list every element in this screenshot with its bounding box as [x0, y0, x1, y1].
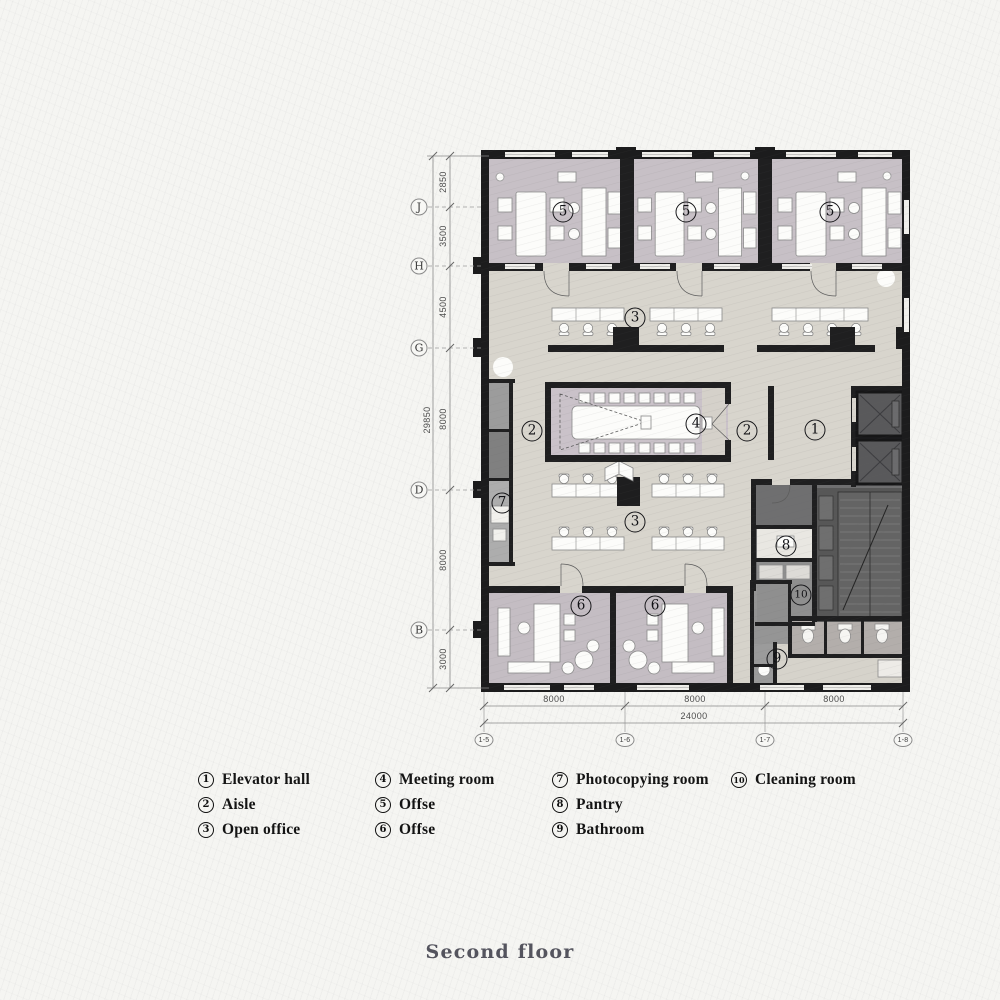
legend-item-7: 7Photocopying room — [552, 771, 709, 789]
legend-item-10: 10Cleaning room — [731, 771, 856, 789]
legend-number-5: 5 — [375, 797, 391, 813]
legend-number-10: 10 — [731, 772, 747, 788]
legend-number-3: 3 — [198, 822, 214, 838]
legend-label-9: Bathroom — [576, 821, 644, 839]
legend-number-9: 9 — [552, 822, 568, 838]
grid-col-bubble-1-7: 1-7 — [756, 733, 775, 747]
legend-label-8: Pantry — [576, 796, 623, 814]
legend-item-6: 6Offse — [375, 821, 435, 839]
grid-row-bubble-B: B — [411, 622, 428, 639]
room-label-10: 10 — [791, 585, 812, 606]
legend-label-4: Meeting room — [399, 771, 495, 789]
grid-col-bubble-1-8: 1-8 — [894, 733, 913, 747]
legend-number-6: 6 — [375, 822, 391, 838]
legend-item-3: 3Open office — [198, 821, 300, 839]
dim-left-1: 3500 — [438, 225, 448, 247]
room-label-9: 9 — [767, 649, 788, 670]
dim-left-5: 3000 — [438, 648, 448, 670]
dim-bottom-1: 8000 — [684, 694, 706, 704]
legend-number-8: 8 — [552, 797, 568, 813]
dim-left-2: 4500 — [438, 296, 448, 318]
legend-label-6: Offse — [399, 821, 435, 839]
legend-label-2: Aisle — [222, 796, 256, 814]
room-label-3: 3 — [625, 308, 646, 329]
dim-bottom-total: 24000 — [680, 711, 707, 721]
page-title: Second floor — [0, 941, 1000, 963]
grid-row-bubble-H: H — [411, 258, 428, 275]
grid-row-bubble-G: G — [411, 340, 428, 357]
dim-left-0: 2850 — [438, 171, 448, 193]
legend-item-4: 4Meeting room — [375, 771, 495, 789]
grid-row-bubble-J: J — [411, 199, 428, 216]
dim-bottom-0: 8000 — [543, 694, 565, 704]
legend-item-9: 9Bathroom — [552, 821, 644, 839]
dim-left-4: 8000 — [438, 549, 448, 571]
room-label-8: 8 — [776, 536, 797, 557]
grid-row-bubble-D: D — [411, 482, 428, 499]
legend-number-4: 4 — [375, 772, 391, 788]
room-label-6: 6 — [571, 596, 592, 617]
legend-label-1: Elevator hall — [222, 771, 310, 789]
dim-bottom-2: 8000 — [823, 694, 845, 704]
grid-col-bubble-1-6: 1-6 — [616, 733, 635, 747]
room-label-6: 6 — [645, 596, 666, 617]
grid-col-bubble-1-5: 1-5 — [475, 733, 494, 747]
legend-label-7: Photocopying room — [576, 771, 709, 789]
legend-item-2: 2Aisle — [198, 796, 256, 814]
legend-label-3: Open office — [222, 821, 300, 839]
legend-item-1: 1Elevator hall — [198, 771, 310, 789]
legend-number-1: 1 — [198, 772, 214, 788]
room-label-4: 4 — [686, 414, 707, 435]
legend-label-10: Cleaning room — [755, 771, 856, 789]
room-label-2: 2 — [737, 421, 758, 442]
room-label-5: 5 — [676, 202, 697, 223]
legend-item-5: 5Offse — [375, 796, 435, 814]
room-label-5: 5 — [553, 202, 574, 223]
room-label-2: 2 — [522, 421, 543, 442]
dim-left-total: 29850 — [422, 406, 432, 433]
room-label-1: 1 — [805, 420, 826, 441]
legend-item-8: 8Pantry — [552, 796, 623, 814]
legend-label-5: Offse — [399, 796, 435, 814]
room-label-5: 5 — [820, 202, 841, 223]
legend-number-2: 2 — [198, 797, 214, 813]
room-label-3: 3 — [625, 512, 646, 533]
floor-plan-page: Second floor 5553242173810669JHGDB285035… — [0, 0, 1000, 1000]
dim-left-3: 8000 — [438, 408, 448, 430]
legend-number-7: 7 — [552, 772, 568, 788]
room-label-7: 7 — [492, 493, 513, 514]
